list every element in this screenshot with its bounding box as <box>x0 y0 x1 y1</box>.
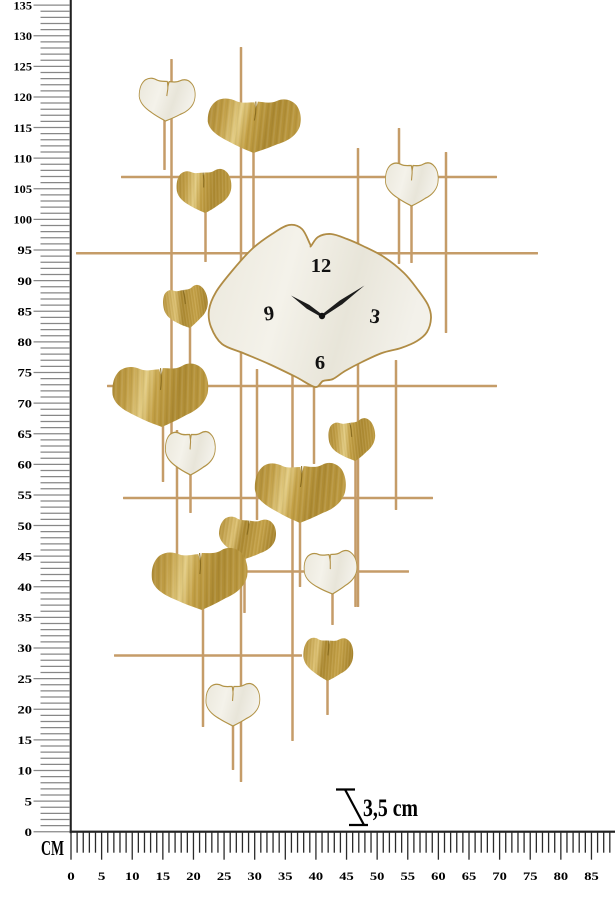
svg-text:5: 5 <box>98 869 106 883</box>
svg-text:35: 35 <box>18 611 33 625</box>
svg-text:0: 0 <box>67 869 75 883</box>
svg-text:50: 50 <box>370 869 385 883</box>
svg-text:5: 5 <box>25 794 33 808</box>
svg-text:95: 95 <box>18 243 33 257</box>
svg-text:55: 55 <box>401 869 416 883</box>
svg-text:40: 40 <box>18 580 33 594</box>
svg-text:15: 15 <box>156 869 171 883</box>
svg-text:35: 35 <box>278 869 293 883</box>
svg-text:110: 110 <box>14 151 33 165</box>
svg-text:50: 50 <box>18 519 33 533</box>
svg-text:75: 75 <box>523 869 538 883</box>
svg-text:45: 45 <box>18 549 33 563</box>
svg-text:80: 80 <box>18 335 33 349</box>
svg-text:CM: CM <box>41 836 64 860</box>
svg-text:40: 40 <box>309 869 324 883</box>
svg-text:30: 30 <box>18 641 33 655</box>
svg-text:85: 85 <box>18 304 33 318</box>
svg-text:60: 60 <box>18 458 33 472</box>
svg-text:20: 20 <box>18 702 33 716</box>
svg-text:20: 20 <box>186 869 201 883</box>
svg-text:3,5 cm: 3,5 cm <box>363 795 418 822</box>
svg-text:12: 12 <box>311 255 332 277</box>
svg-text:0: 0 <box>25 825 33 839</box>
svg-text:25: 25 <box>217 869 232 883</box>
svg-text:105: 105 <box>14 182 33 196</box>
svg-text:70: 70 <box>18 396 33 410</box>
svg-text:75: 75 <box>18 366 33 380</box>
svg-text:90: 90 <box>18 274 33 288</box>
svg-text:130: 130 <box>14 29 33 43</box>
svg-text:70: 70 <box>492 869 507 883</box>
svg-text:45: 45 <box>339 869 354 883</box>
svg-text:10: 10 <box>18 764 33 778</box>
svg-text:120: 120 <box>14 90 33 104</box>
svg-text:60: 60 <box>431 869 446 883</box>
svg-text:55: 55 <box>18 488 33 502</box>
svg-text:135: 135 <box>14 0 33 12</box>
svg-text:15: 15 <box>18 733 33 747</box>
svg-text:115: 115 <box>14 121 33 135</box>
svg-text:65: 65 <box>18 427 33 441</box>
svg-text:25: 25 <box>18 672 33 686</box>
svg-text:80: 80 <box>554 869 569 883</box>
svg-text:100: 100 <box>14 213 33 227</box>
svg-text:6: 6 <box>315 352 325 374</box>
svg-text:125: 125 <box>14 60 33 74</box>
svg-text:10: 10 <box>125 869 140 883</box>
svg-text:85: 85 <box>584 869 599 883</box>
svg-text:65: 65 <box>462 869 477 883</box>
svg-text:30: 30 <box>247 869 262 883</box>
